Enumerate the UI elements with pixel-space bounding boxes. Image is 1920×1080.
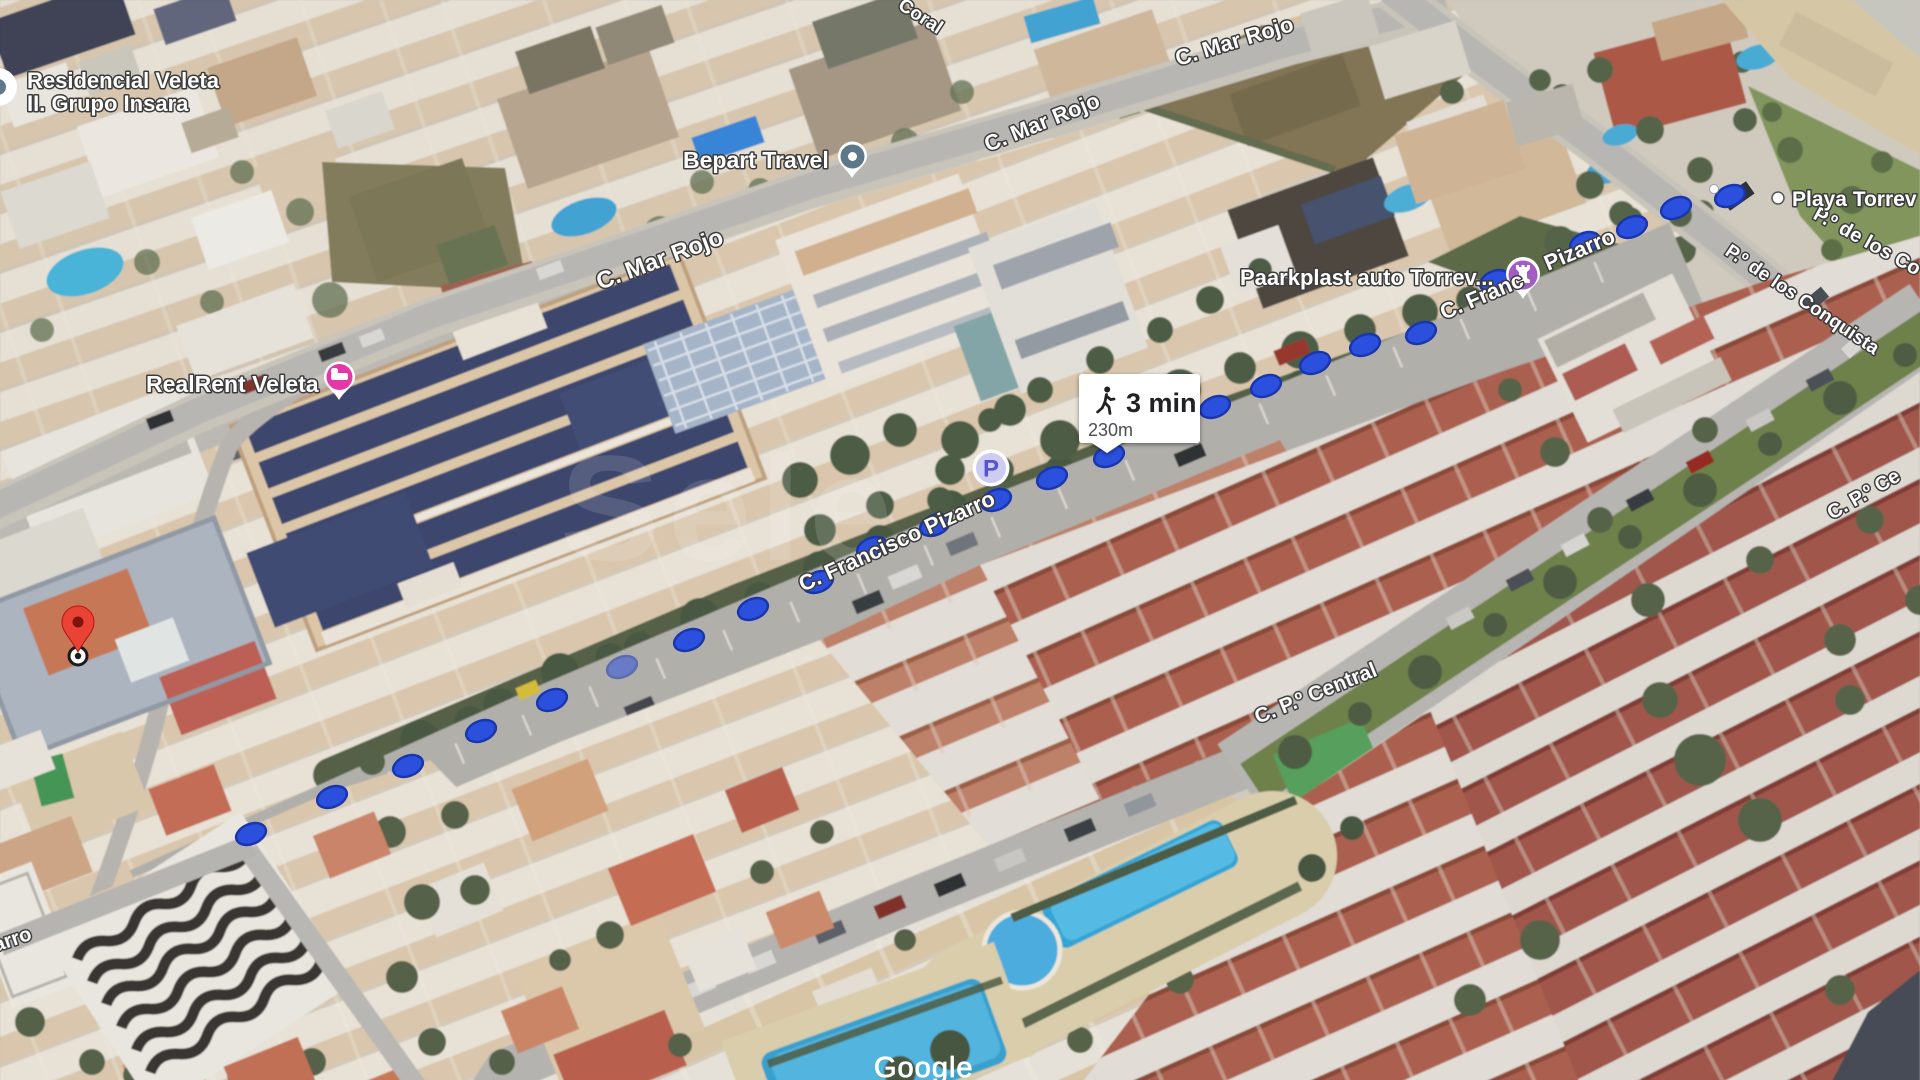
svg-text:Residencial Veleta: Residencial Veleta [27, 68, 220, 93]
svg-text:II. Grupo Insara: II. Grupo Insara [27, 91, 189, 116]
svg-text:RealRent Veleta: RealRent Veleta [146, 371, 319, 397]
svg-text:230m: 230m [1088, 420, 1133, 440]
svg-text:Bepart Travel: Bepart Travel [683, 147, 829, 173]
svg-text:Google: Google [874, 1052, 974, 1080]
svg-text:Paarkplast auto Torrev...: Paarkplast auto Torrev... [1240, 265, 1494, 290]
svg-text:3 min: 3 min [1126, 388, 1197, 418]
svg-text:Playa Torrev: Playa Torrev [1792, 188, 1917, 211]
svg-text:P: P [983, 456, 999, 483]
